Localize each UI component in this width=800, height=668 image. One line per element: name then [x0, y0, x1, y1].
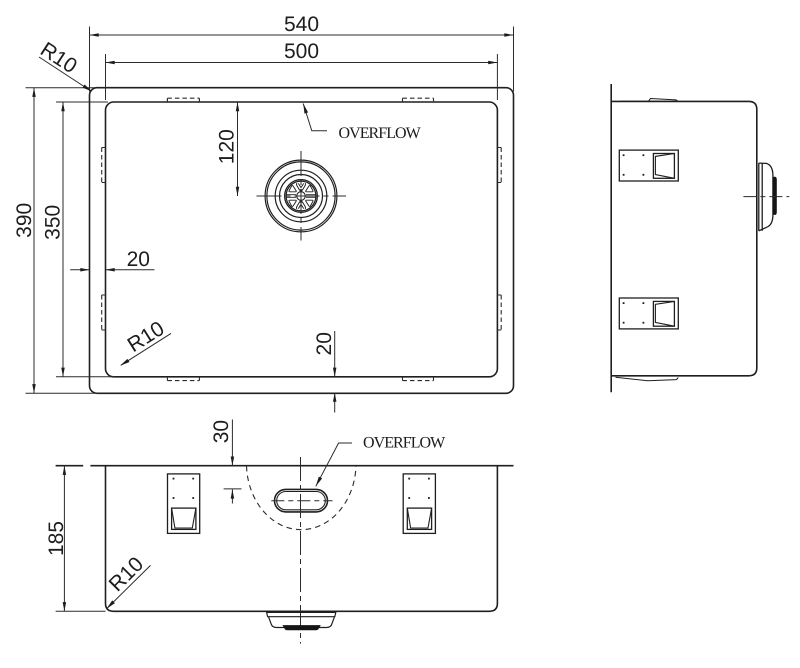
svg-text:OVERFLOW: OVERFLOW — [339, 125, 422, 142]
svg-text:20: 20 — [313, 332, 336, 355]
svg-text:390: 390 — [13, 203, 36, 238]
svg-text:350: 350 — [42, 205, 65, 240]
svg-text:30: 30 — [210, 420, 233, 443]
svg-text:540: 540 — [284, 13, 319, 36]
svg-text:OVERFLOW: OVERFLOW — [363, 435, 446, 452]
svg-text:500: 500 — [284, 40, 319, 63]
svg-text:185: 185 — [45, 521, 68, 556]
svg-text:20: 20 — [127, 248, 150, 271]
svg-text:120: 120 — [216, 129, 239, 164]
